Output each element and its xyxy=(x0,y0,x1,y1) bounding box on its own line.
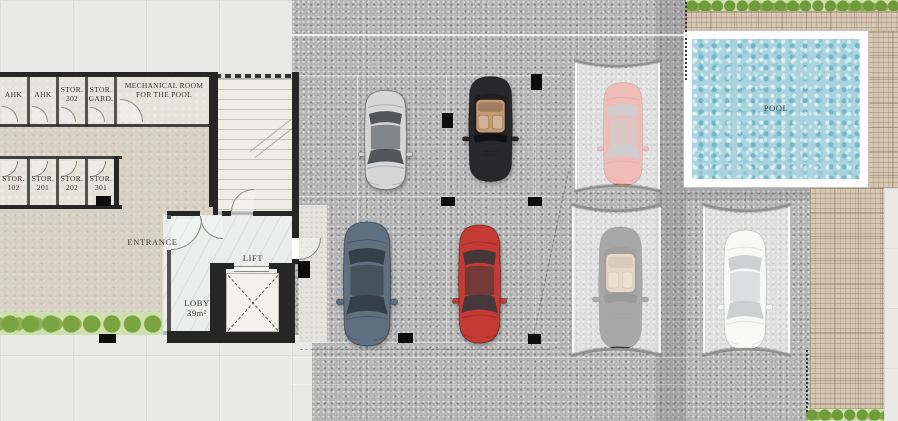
hedge-left xyxy=(0,312,163,335)
wall xyxy=(114,77,117,126)
carport-canopy xyxy=(573,55,662,197)
car-blue-sedan xyxy=(336,219,398,349)
wall xyxy=(85,159,88,205)
wall xyxy=(27,77,30,126)
wall xyxy=(167,211,200,216)
column-marker xyxy=(99,334,116,343)
wall xyxy=(222,211,231,216)
column-marker xyxy=(528,197,542,206)
stall-line xyxy=(535,75,536,197)
carport-canopy xyxy=(701,198,792,362)
lift-door-track xyxy=(234,266,269,272)
column-marker xyxy=(441,197,455,206)
column-marker xyxy=(398,333,413,343)
wall-post xyxy=(298,261,310,278)
carport-canopy xyxy=(570,198,663,362)
column-marker xyxy=(531,74,542,90)
stall-line xyxy=(446,200,447,343)
pool: POOL xyxy=(692,39,860,179)
wall-stairs-left xyxy=(213,72,218,215)
paving-top-left xyxy=(0,0,292,77)
room-label: MECHANICAL ROOM FOR THE POOL xyxy=(121,81,207,100)
wall xyxy=(0,156,122,159)
room-stor-302: STOR.302 xyxy=(59,77,85,124)
room-stor-102: STOR.102 xyxy=(0,159,27,205)
lift-label: LIFT xyxy=(223,253,283,264)
room-label: STOR.301 xyxy=(88,174,114,193)
room-label: AHK xyxy=(30,90,56,99)
wall xyxy=(85,77,88,126)
stair-break-line xyxy=(250,119,292,152)
room-stor-gard: STOR.GARD. xyxy=(88,77,114,124)
boundary-dots-top xyxy=(685,2,687,80)
lift-cabin xyxy=(226,273,279,332)
wall-top-perimeter xyxy=(0,72,213,77)
staircase xyxy=(218,79,292,211)
room-ahk-1: AHK xyxy=(0,77,27,124)
pool-label: POOL xyxy=(692,103,860,114)
wall-post xyxy=(96,196,111,206)
column-marker xyxy=(528,334,541,344)
wall xyxy=(56,159,59,205)
dashed-line xyxy=(300,349,550,350)
room-label: STOR.302 xyxy=(59,85,85,104)
deck-top-strip xyxy=(686,11,898,33)
room-stor-201: STOR.201 xyxy=(30,159,56,205)
wall xyxy=(27,159,30,205)
room-label: STOR.201 xyxy=(30,174,56,193)
deck-bottom-right xyxy=(810,188,884,409)
room-label: STOR.102 xyxy=(0,174,27,193)
lobby-area: 39m² xyxy=(187,308,207,318)
column-marker xyxy=(442,113,453,128)
paving-bottom-left xyxy=(0,335,312,421)
wall-lobby-right xyxy=(292,72,299,264)
stall-line xyxy=(446,75,447,197)
wall xyxy=(56,77,59,126)
lift-wall xyxy=(269,263,277,269)
lane-line xyxy=(292,34,688,36)
car-red-sedan xyxy=(452,222,507,346)
paving-right-edge xyxy=(884,188,898,421)
car-silver-sedan xyxy=(358,88,413,192)
room-mechanical: MECHANICAL ROOM FOR THE POOL xyxy=(117,77,211,124)
room-label: AHK xyxy=(0,90,27,99)
boundary-dots-bottom xyxy=(806,350,808,412)
room-label: STOR.GARD. xyxy=(88,85,114,104)
room-label: STOR.202 xyxy=(59,174,85,193)
car-black-convertible xyxy=(462,74,519,184)
stall-line xyxy=(292,75,560,76)
lift-wall xyxy=(226,263,234,269)
entrance-label: ENTRANCE xyxy=(110,237,195,248)
lobby-label: LOBY39m² xyxy=(168,287,226,319)
lane-line xyxy=(292,384,688,385)
floor-plan: POOL AHK AHK STOR.302 STOR xyxy=(0,0,898,421)
storage-rooms-top: AHK AHK STOR.302 STOR.GARD. MECHANICAL R… xyxy=(0,77,211,124)
room-stor-202: STOR.202 xyxy=(59,159,85,205)
door-gap xyxy=(292,238,299,259)
room-ahk-2: AHK xyxy=(30,77,56,124)
wall xyxy=(114,156,119,209)
wall xyxy=(253,211,292,216)
wall-stairs-top-dashed xyxy=(215,74,292,78)
lane-line xyxy=(292,196,560,197)
wall xyxy=(0,124,211,127)
deck-right-of-pool xyxy=(868,31,898,188)
